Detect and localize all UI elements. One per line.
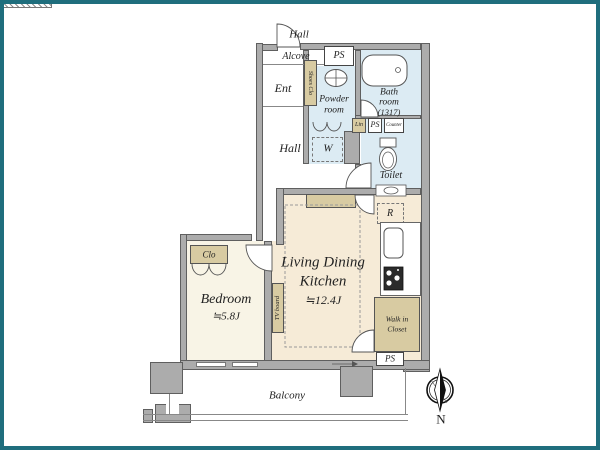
shoes-closet-label: Shoes Clo <box>307 71 313 95</box>
ldk-size-label: ≒12.4J <box>305 294 341 306</box>
bathtub-icon <box>362 55 407 86</box>
floor-plan: Hall Alcove PS Ent Shoes Clo Powder room… <box>0 0 600 450</box>
bedroom-door-arc <box>246 245 272 271</box>
bedroom-label: Bedroom <box>201 293 252 307</box>
linen-label: Lin <box>355 122 363 128</box>
hall-outside-label: Hall <box>289 30 309 41</box>
sliding-door-arrow <box>332 361 358 367</box>
hall-label: Hall <box>279 142 300 154</box>
ps-mid-label: PS <box>371 121 380 129</box>
compass-icon <box>427 369 453 411</box>
ldk-label: Kitchen <box>300 275 347 290</box>
washer-label: W <box>323 144 332 155</box>
counter-label: Counter <box>386 123 402 128</box>
ldk-label: Living Dining <box>281 256 365 271</box>
bath-door-arc <box>361 100 378 117</box>
entrance-label: Ent <box>275 82 292 94</box>
closet-folding-door-arc <box>192 264 226 275</box>
bedroom-closet-label: Clo <box>202 251 215 260</box>
hand-basin-icon <box>376 185 406 196</box>
powder-folding-door-arc <box>313 122 341 131</box>
toilet-icon <box>380 138 397 171</box>
bedroom-size-label: ≒5.8J <box>212 312 240 323</box>
balcony-label: Balcony <box>269 391 305 402</box>
walk-in-closet-label: Closet <box>387 325 406 333</box>
fridge-label: R <box>387 209 393 219</box>
toilet-door-arc <box>346 163 371 188</box>
ps-bottom-label: PS <box>385 355 395 364</box>
powder-room-label: room <box>324 106 344 116</box>
tv-board-label: TV board <box>275 296 282 320</box>
sink-icon <box>325 70 347 87</box>
ps-top-label: PS <box>333 51 344 61</box>
bath-size-label: (1317) <box>378 108 401 117</box>
fixtures-layer <box>0 0 600 450</box>
stove-icon <box>384 267 403 290</box>
walk-in-closet-label: Walk in <box>386 315 408 323</box>
walk-in-closet-door-arc <box>352 330 374 352</box>
powder-room-label: Powder <box>319 95 349 105</box>
kitchen-sink-icon <box>384 228 403 258</box>
compass-north-label: N <box>436 413 445 426</box>
toilet-label: Toilet <box>380 171 402 181</box>
alcove-label: Alcove <box>282 52 309 62</box>
ldk-door-arc <box>355 195 374 214</box>
